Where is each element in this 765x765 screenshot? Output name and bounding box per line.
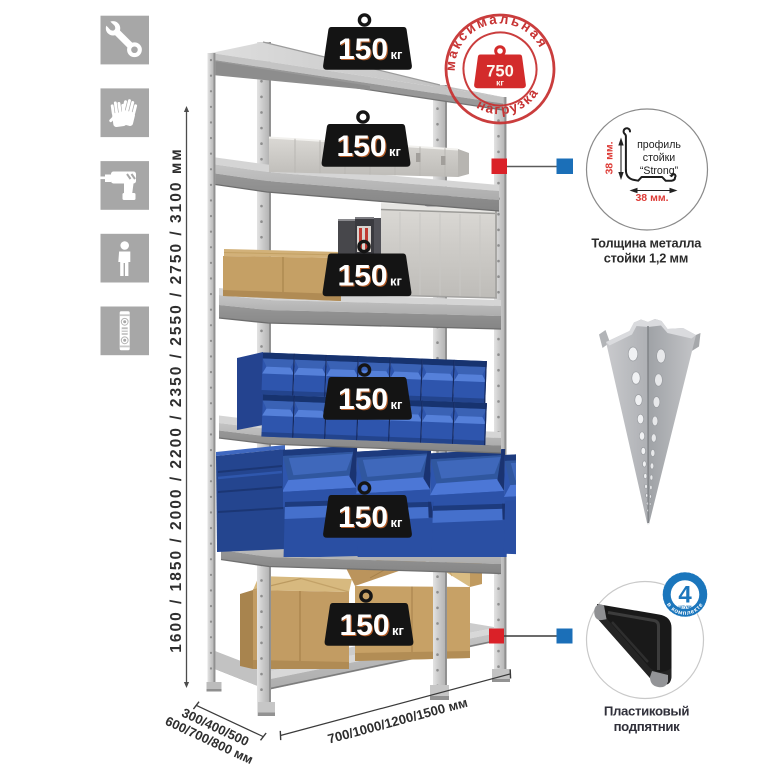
svg-text:стойки 1,2 мм: стойки 1,2 мм: [604, 251, 688, 266]
svg-text:38 мм.: 38 мм.: [604, 141, 616, 174]
svg-text:кг: кг: [496, 78, 504, 88]
svg-text:стойки: стойки: [643, 152, 675, 164]
svg-text:Толщина металла: Толщина металла: [591, 236, 702, 251]
svg-text:1600 / 1850 / 2000 / 2200 / 23: 1600 / 1850 / 2000 / 2200 / 2350 / 2550 …: [168, 147, 185, 653]
svg-text:38 мм.: 38 мм.: [635, 192, 668, 204]
svg-text:Пластиковый: Пластиковый: [604, 704, 689, 719]
svg-text:подпятник: подпятник: [614, 719, 681, 734]
svg-text:штуки: штуки: [678, 604, 692, 609]
svg-text:профиль: профиль: [637, 139, 681, 151]
svg-text:“Strong”: “Strong”: [640, 165, 679, 177]
